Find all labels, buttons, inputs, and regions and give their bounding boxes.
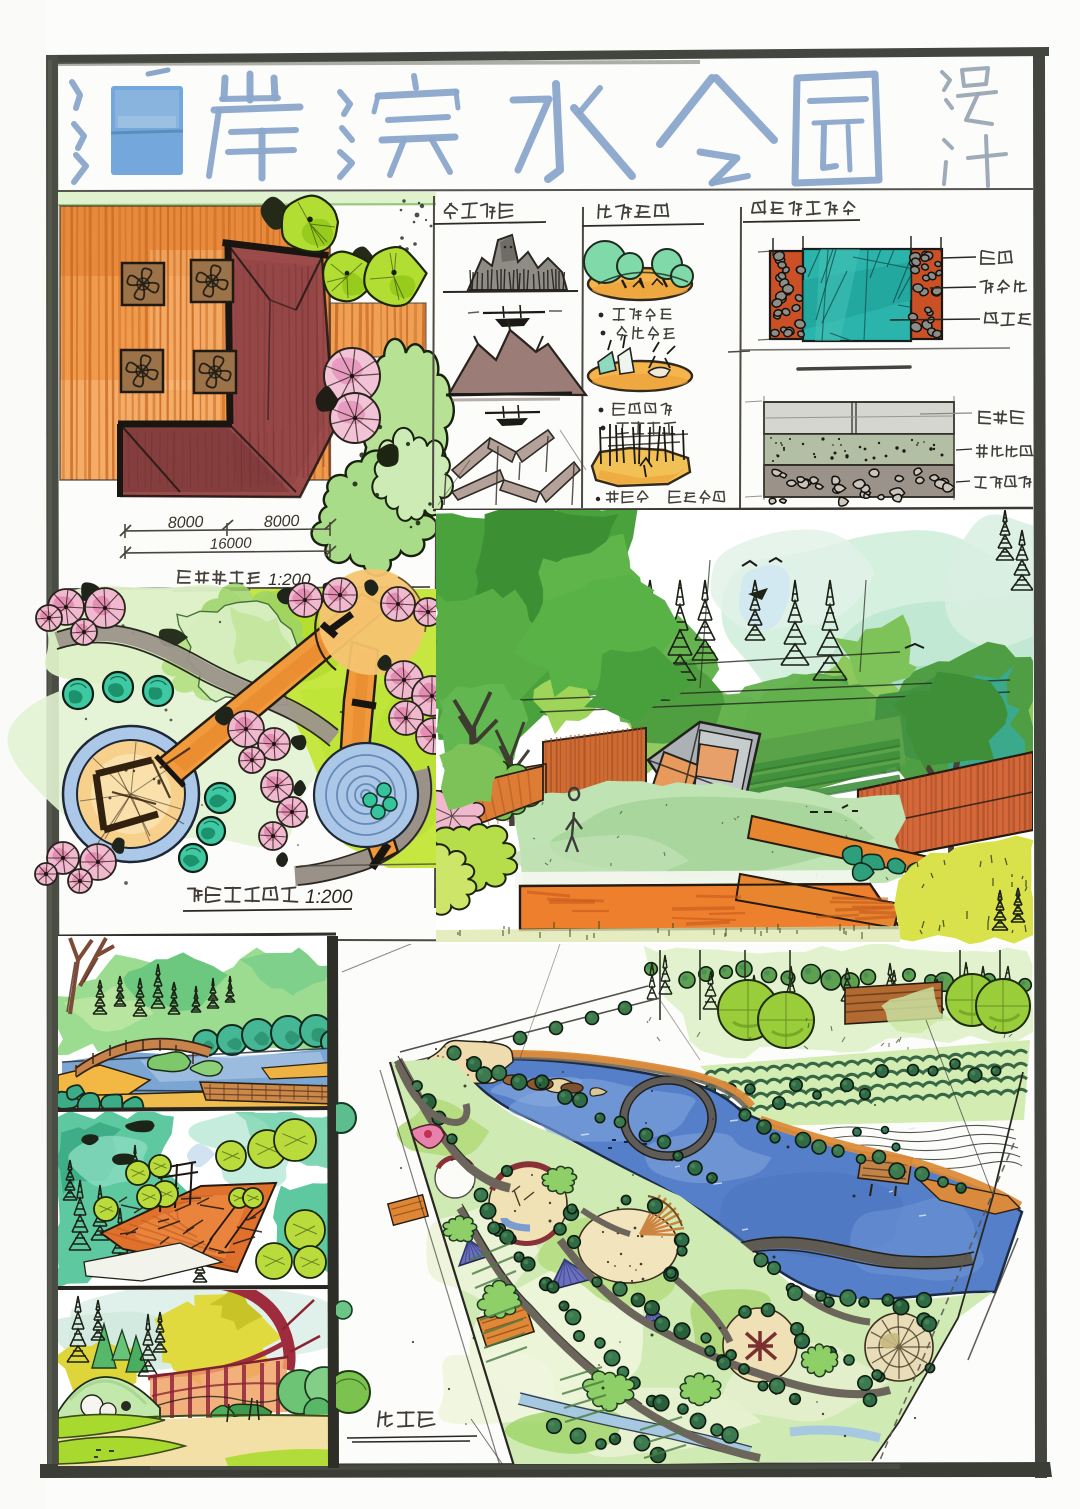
- svg-text:8000: 8000: [168, 514, 204, 532]
- svg-text:8000: 8000: [264, 513, 300, 531]
- svg-text:16000: 16000: [210, 535, 253, 553]
- svg-text:1:200: 1:200: [305, 887, 353, 908]
